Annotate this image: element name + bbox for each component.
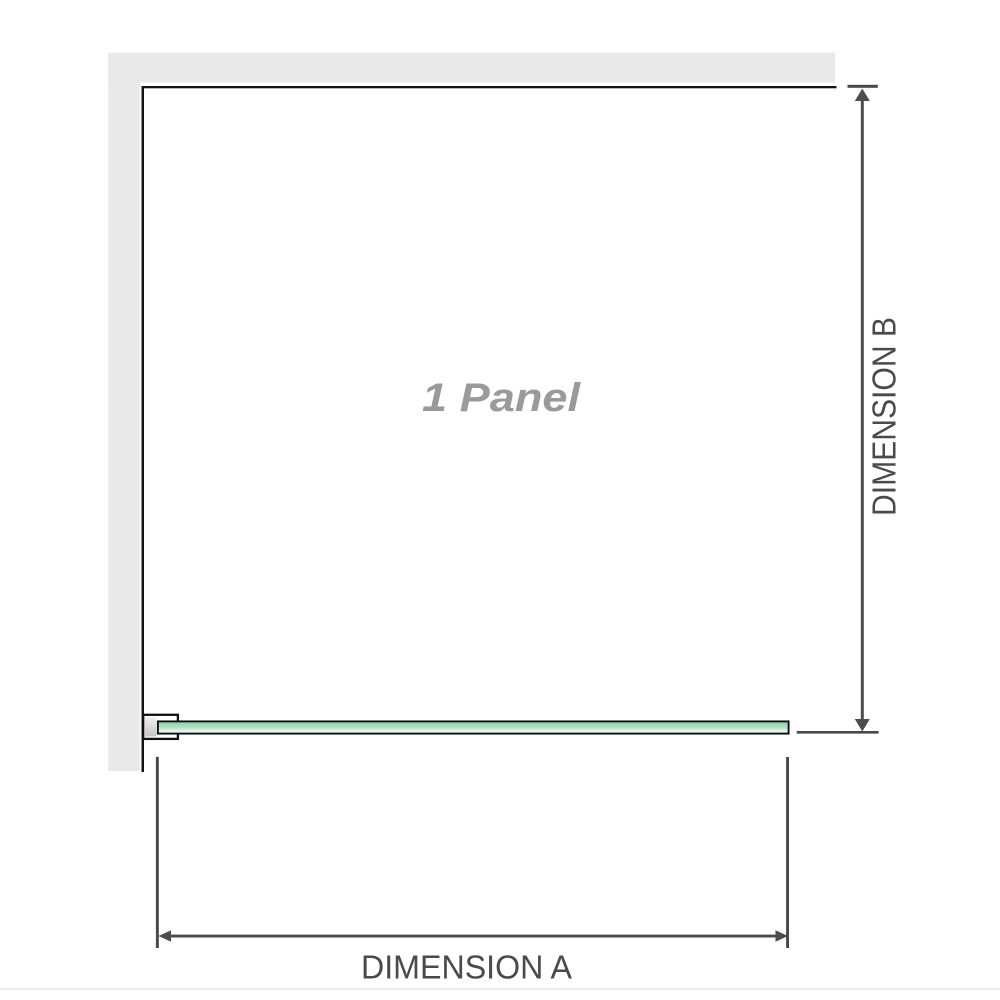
svg-text:DIMENSION B: DIMENSION B — [866, 317, 903, 516]
svg-text:DIMENSION A: DIMENSION A — [361, 949, 572, 986]
svg-text:1 Panel: 1 Panel — [422, 376, 581, 420]
